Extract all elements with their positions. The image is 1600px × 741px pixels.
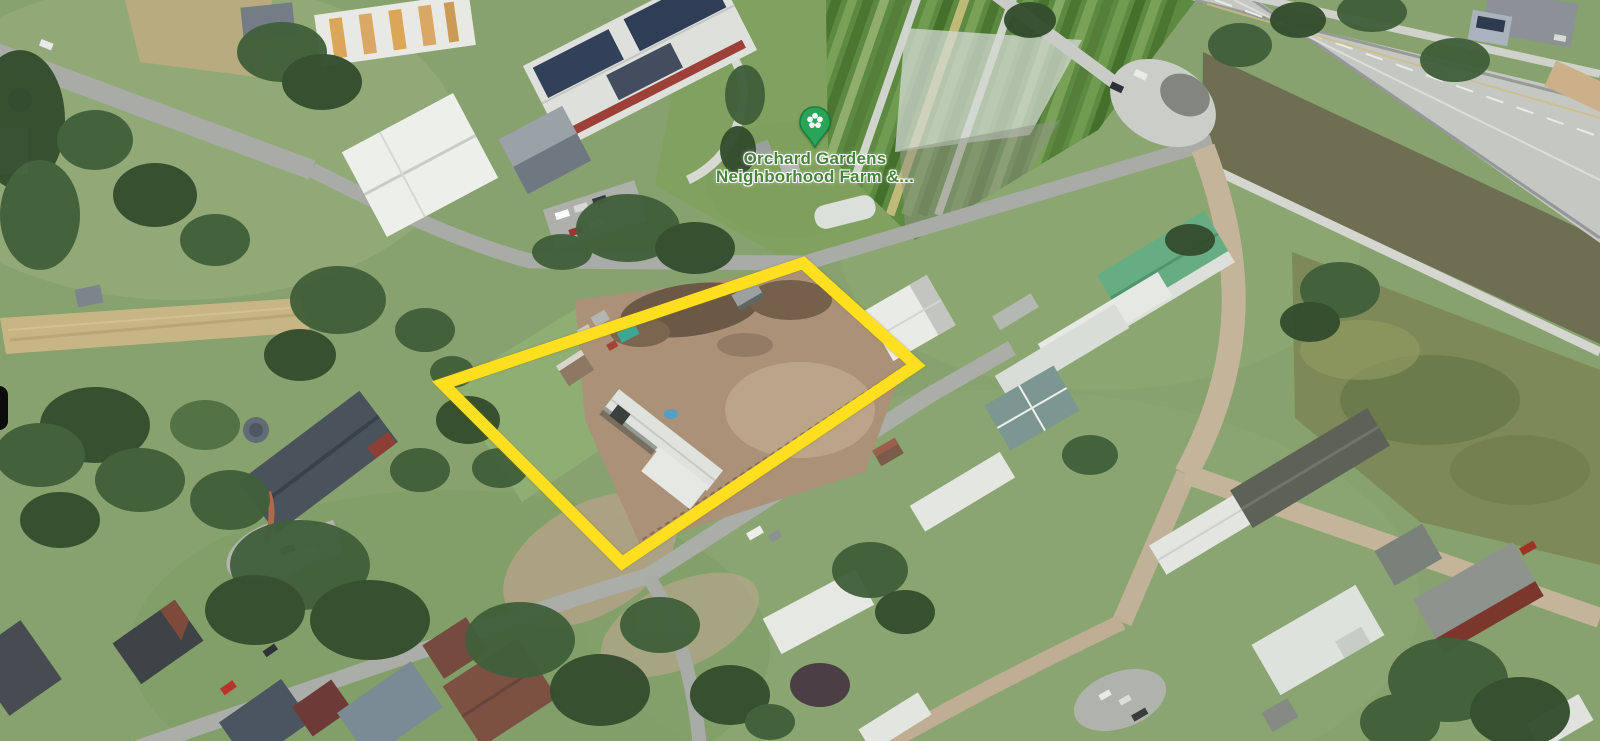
- poi-label-line1: Orchard Gardens: [665, 150, 965, 168]
- edge-artifact: [0, 386, 8, 430]
- poi-label-line2: Neighborhood Farm &...: [665, 168, 965, 186]
- poi-label[interactable]: Orchard Gardens Neighborhood Farm &...: [665, 150, 965, 186]
- satellite-map-canvas[interactable]: Orchard Gardens Neighborhood Farm &...: [0, 0, 1600, 741]
- garden-pin-icon[interactable]: [798, 104, 832, 148]
